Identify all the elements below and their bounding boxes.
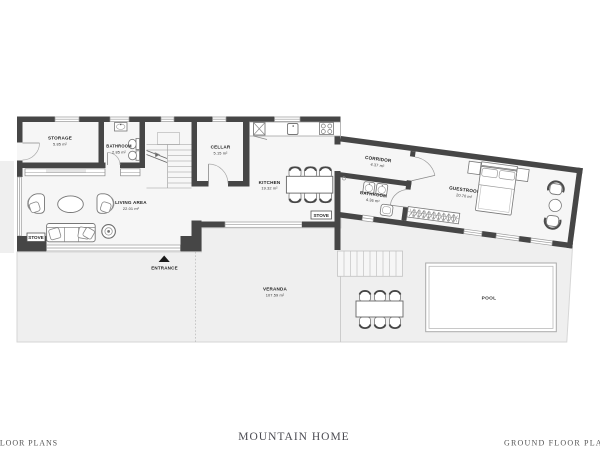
svg-text:GROUND FLOOR PLAN: GROUND FLOOR PLAN	[504, 439, 600, 448]
svg-text:2.85 m²: 2.85 m²	[112, 150, 126, 155]
svg-text:107.59 m²: 107.59 m²	[266, 293, 285, 298]
svg-text:STOVE: STOVE	[313, 213, 329, 218]
svg-text:KITCHEN: KITCHEN	[259, 180, 281, 185]
svg-text:5.15 m²: 5.15 m²	[214, 151, 228, 156]
svg-text:POOL: POOL	[482, 296, 497, 302]
svg-text:CELLAR: CELLAR	[211, 145, 231, 150]
svg-text:MOUNTAIN HOME: MOUNTAIN HOME	[238, 431, 349, 443]
svg-text:BATHROOM: BATHROOM	[106, 144, 132, 149]
svg-text:FLOOR PLANS: FLOOR PLANS	[0, 439, 58, 448]
svg-text:5.85 m²: 5.85 m²	[53, 142, 67, 147]
svg-text:LIVING AREA: LIVING AREA	[115, 200, 147, 205]
svg-text:19.32 m²: 19.32 m²	[261, 186, 278, 191]
svg-text:22.01 m²: 22.01 m²	[123, 206, 140, 211]
svg-text:STORAGE: STORAGE	[48, 136, 72, 141]
svg-text:ENTRANCE: ENTRANCE	[151, 266, 178, 271]
svg-text:STOVE: STOVE	[28, 235, 44, 240]
svg-text:VERANDA: VERANDA	[263, 287, 288, 292]
